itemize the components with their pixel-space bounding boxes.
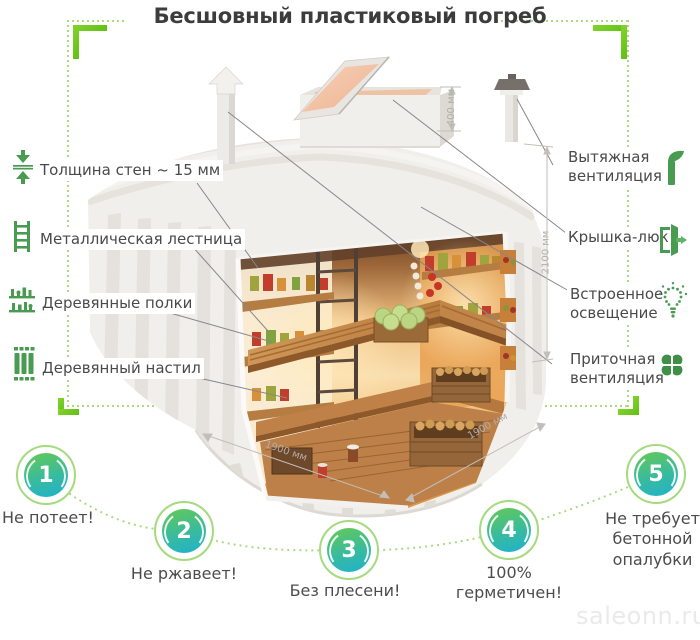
watermark: saleonn.ru xyxy=(576,602,700,630)
dimension-body-height: 2100 мм xyxy=(540,231,551,275)
dimension-hatch-height: 400 мм xyxy=(446,89,457,126)
corner-bracket-top-right xyxy=(621,25,627,59)
corner-bracket-top-left xyxy=(73,25,79,59)
label-hatch-cover: Крышка-люк xyxy=(565,227,672,248)
corner-bracket-bottom-right xyxy=(618,409,639,415)
cabbage-crate xyxy=(374,305,428,342)
label-metal-ladder: Металлическая лестница xyxy=(37,229,245,250)
benefit-circle-4: 4 xyxy=(479,500,539,560)
infographic-plastic-cellar: Бесшовный пластиковый погреб xyxy=(0,0,700,640)
label-built-in-lighting: Встроенное освещение xyxy=(567,284,665,324)
benefit-label-1: Не потеет! xyxy=(0,508,96,528)
interior-lamp xyxy=(411,240,429,258)
benefit-label-4: 100% герметичен! xyxy=(434,563,584,604)
label-wooden-decking: Деревянный настил xyxy=(39,358,204,379)
exhaust-vent-pipe xyxy=(494,74,530,142)
light-bulb-icon xyxy=(658,282,688,318)
page-title: Бесшовный пластиковый погреб xyxy=(0,4,700,28)
label-wooden-shelves: Деревянные полки xyxy=(39,293,195,314)
benefit-circle-2: 2 xyxy=(154,501,214,561)
benefit-number: 2 xyxy=(176,519,191,544)
benefit-label-3: Без плесени! xyxy=(285,581,405,601)
exhaust-vent-icon xyxy=(659,149,685,185)
decking-icon xyxy=(13,347,35,381)
corner-bracket-bottom-left xyxy=(58,409,79,415)
fan-icon xyxy=(659,352,685,378)
benefit-label-5: Не требует бетонной опалубки xyxy=(605,509,700,570)
benefit-number: 5 xyxy=(648,462,663,487)
benefit-circle-1: 1 xyxy=(16,445,76,505)
label-wall-thickness: Толщина стен ~ 15 мм xyxy=(37,160,223,181)
label-supply-vent: Приточная вентиляция xyxy=(567,349,665,389)
benefit-label-2: Не ржавеет! xyxy=(124,564,244,584)
ladder-icon xyxy=(13,221,31,252)
frame-dotted-left xyxy=(67,20,69,407)
benefit-circle-5: 5 xyxy=(626,444,686,504)
shelves-icon xyxy=(9,286,36,314)
label-exhaust-vent: Вытяжная вентиляция xyxy=(565,147,663,187)
benefit-circle-3: 3 xyxy=(319,520,379,580)
side-niches xyxy=(500,250,516,370)
benefit-number: 4 xyxy=(501,518,516,543)
benefit-number: 1 xyxy=(38,463,53,488)
benefit-number: 3 xyxy=(341,538,356,563)
wall-thickness-icon xyxy=(12,150,34,184)
hatch-door-icon xyxy=(657,224,687,256)
